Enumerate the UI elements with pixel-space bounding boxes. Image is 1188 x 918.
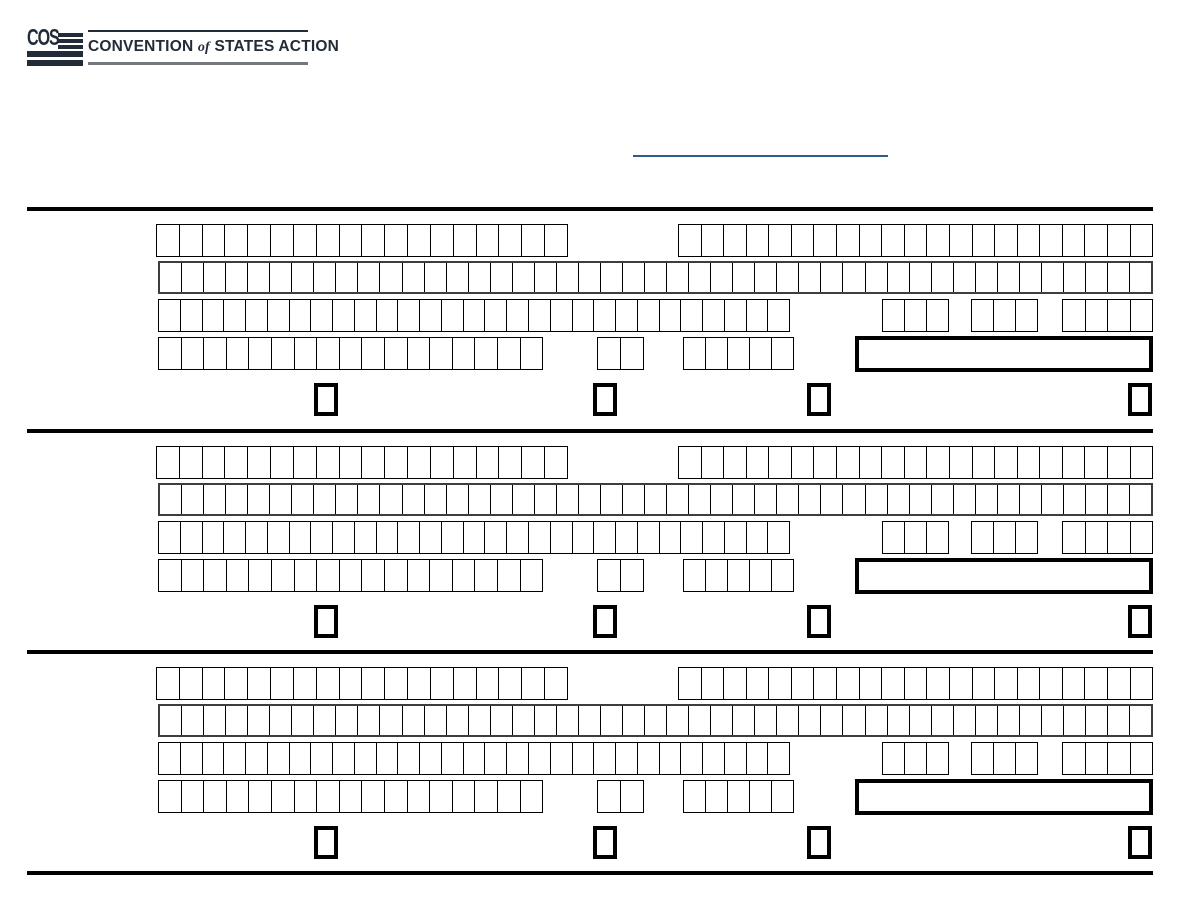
char-box[interactable] — [528, 743, 550, 774]
char-box[interactable] — [407, 560, 430, 591]
char-box[interactable] — [578, 706, 600, 735]
char-box[interactable] — [949, 225, 972, 256]
char-box[interactable] — [746, 300, 768, 331]
char-box[interactable] — [1107, 300, 1130, 331]
char-box[interactable] — [310, 522, 332, 553]
char-box[interactable] — [710, 485, 732, 514]
char-box[interactable] — [520, 781, 543, 812]
char-box[interactable] — [813, 668, 836, 699]
char-box[interactable] — [441, 743, 463, 774]
char-box[interactable] — [289, 743, 311, 774]
char-box[interactable] — [453, 225, 476, 256]
char-box[interactable] — [746, 668, 769, 699]
char-box[interactable] — [335, 263, 357, 292]
char-box[interactable] — [430, 668, 453, 699]
char-box[interactable] — [953, 485, 975, 514]
char-box[interactable] — [926, 447, 949, 478]
char-box[interactable] — [865, 263, 887, 292]
checkbox-2[interactable] — [593, 605, 617, 638]
char-box[interactable] — [723, 225, 746, 256]
checkbox-4[interactable] — [1128, 383, 1152, 416]
char-box[interactable] — [767, 300, 789, 331]
char-box[interactable] — [429, 781, 452, 812]
checkbox-4[interactable] — [1128, 605, 1152, 638]
char-box[interactable] — [637, 522, 659, 553]
char-box[interactable] — [679, 447, 701, 478]
char-box[interactable] — [883, 300, 904, 331]
char-box[interactable] — [994, 447, 1017, 478]
char-box[interactable] — [679, 225, 701, 256]
char-box[interactable] — [705, 560, 727, 591]
char-box[interactable] — [859, 668, 882, 699]
char-box[interactable] — [881, 668, 904, 699]
char-box[interactable] — [1062, 447, 1085, 478]
char-box[interactable] — [202, 447, 225, 478]
char-box[interactable] — [881, 447, 904, 478]
char-box[interactable] — [1063, 300, 1085, 331]
char-box[interactable] — [294, 781, 317, 812]
char-box[interactable] — [245, 522, 267, 553]
char-box[interactable] — [354, 743, 376, 774]
char-box[interactable] — [767, 522, 789, 553]
char-box[interactable] — [1107, 706, 1129, 735]
char-box[interactable] — [528, 522, 550, 553]
char-box[interactable] — [419, 743, 441, 774]
char-box[interactable] — [680, 743, 702, 774]
char-box[interactable] — [644, 706, 666, 735]
char-box[interactable] — [732, 706, 754, 735]
char-box[interactable] — [909, 485, 931, 514]
char-box[interactable] — [600, 706, 622, 735]
char-box[interactable] — [659, 522, 681, 553]
char-box[interactable] — [859, 225, 882, 256]
char-box[interactable] — [749, 560, 771, 591]
char-box[interactable] — [202, 300, 224, 331]
char-box[interactable] — [179, 447, 202, 478]
char-box[interactable] — [225, 706, 247, 735]
char-box[interactable] — [544, 225, 567, 256]
char-box[interactable] — [1015, 743, 1037, 774]
char-box[interactable] — [1041, 485, 1063, 514]
char-box[interactable] — [702, 522, 724, 553]
char-box[interactable] — [1129, 485, 1151, 514]
char-box[interactable] — [313, 706, 335, 735]
char-box[interactable] — [904, 668, 927, 699]
char-box[interactable] — [180, 300, 202, 331]
char-box[interactable] — [975, 263, 997, 292]
char-box[interactable] — [904, 522, 926, 553]
char-box[interactable] — [271, 560, 294, 591]
char-box[interactable] — [339, 781, 362, 812]
char-box[interactable] — [550, 522, 572, 553]
char-box[interactable] — [680, 300, 702, 331]
char-box[interactable] — [289, 300, 311, 331]
char-box[interactable] — [203, 338, 226, 369]
char-box[interactable] — [1085, 522, 1108, 553]
char-box[interactable] — [659, 743, 681, 774]
char-box[interactable] — [1130, 668, 1153, 699]
char-box[interactable] — [688, 706, 710, 735]
char-box[interactable] — [506, 522, 528, 553]
char-box[interactable] — [771, 560, 793, 591]
char-box[interactable] — [335, 485, 357, 514]
char-box[interactable] — [746, 522, 768, 553]
char-box[interactable] — [267, 743, 289, 774]
char-box[interactable] — [446, 485, 468, 514]
char-box[interactable] — [159, 522, 180, 553]
char-box[interactable] — [615, 743, 637, 774]
checkbox-3[interactable] — [807, 383, 831, 416]
char-box[interactable] — [732, 485, 754, 514]
char-box[interactable] — [727, 781, 749, 812]
char-box[interactable] — [463, 522, 485, 553]
char-box[interactable] — [1107, 225, 1130, 256]
char-box[interactable] — [247, 263, 269, 292]
char-box[interactable] — [202, 522, 224, 553]
char-box[interactable] — [271, 338, 294, 369]
char-box[interactable] — [754, 706, 776, 735]
char-box[interactable] — [994, 668, 1017, 699]
char-box[interactable] — [1041, 706, 1063, 735]
char-box[interactable] — [836, 447, 859, 478]
char-box[interactable] — [813, 225, 836, 256]
checkbox-1[interactable] — [314, 826, 338, 859]
char-box[interactable] — [506, 300, 528, 331]
char-box[interactable] — [376, 743, 398, 774]
char-box[interactable] — [476, 668, 499, 699]
char-box[interactable] — [316, 668, 339, 699]
char-box[interactable] — [836, 225, 859, 256]
char-box[interactable] — [953, 706, 975, 735]
char-box[interactable] — [476, 447, 499, 478]
char-box[interactable] — [593, 300, 615, 331]
char-box[interactable] — [247, 485, 269, 514]
char-box[interactable] — [159, 743, 180, 774]
char-box[interactable] — [361, 447, 384, 478]
char-box[interactable] — [1017, 447, 1040, 478]
char-box[interactable] — [931, 485, 953, 514]
char-box[interactable] — [620, 338, 643, 369]
char-box[interactable] — [293, 668, 316, 699]
char-box[interactable] — [271, 781, 294, 812]
char-box[interactable] — [883, 743, 904, 774]
char-box[interactable] — [181, 338, 204, 369]
char-box[interactable] — [247, 447, 270, 478]
char-box[interactable] — [269, 706, 291, 735]
char-box[interactable] — [202, 743, 224, 774]
char-box[interactable] — [1107, 263, 1129, 292]
char-box[interactable] — [484, 522, 506, 553]
char-box[interactable] — [1085, 263, 1107, 292]
char-box[interactable] — [1130, 225, 1153, 256]
char-box[interactable] — [881, 225, 904, 256]
char-box[interactable] — [361, 560, 384, 591]
char-box[interactable] — [572, 522, 594, 553]
char-box[interactable] — [598, 560, 620, 591]
char-box[interactable] — [291, 485, 313, 514]
char-box[interactable] — [512, 485, 534, 514]
char-box[interactable] — [749, 781, 771, 812]
char-box[interactable] — [620, 560, 643, 591]
char-box[interactable] — [883, 522, 904, 553]
char-box[interactable] — [181, 560, 204, 591]
char-box[interactable] — [666, 485, 688, 514]
char-box[interactable] — [887, 263, 909, 292]
char-box[interactable] — [544, 668, 567, 699]
char-box[interactable] — [791, 447, 814, 478]
char-box[interactable] — [1130, 522, 1153, 553]
char-box[interactable] — [248, 338, 271, 369]
char-box[interactable] — [225, 485, 247, 514]
char-box[interactable] — [666, 706, 688, 735]
char-box[interactable] — [723, 447, 746, 478]
char-box[interactable] — [926, 225, 949, 256]
char-box[interactable] — [248, 781, 271, 812]
char-box[interactable] — [684, 781, 705, 812]
char-box[interactable] — [397, 300, 419, 331]
char-box[interactable] — [1129, 263, 1151, 292]
char-box[interactable] — [746, 225, 769, 256]
char-box[interactable] — [727, 560, 749, 591]
char-box[interactable] — [224, 447, 247, 478]
char-box[interactable] — [332, 300, 354, 331]
char-box[interactable] — [887, 485, 909, 514]
char-box[interactable] — [972, 300, 993, 331]
char-box[interactable] — [407, 225, 430, 256]
char-box[interactable] — [972, 225, 995, 256]
char-box[interactable] — [600, 485, 622, 514]
char-box[interactable] — [484, 300, 506, 331]
char-box[interactable] — [468, 485, 490, 514]
char-box[interactable] — [798, 706, 820, 735]
char-box[interactable] — [1063, 743, 1085, 774]
signature-box[interactable] — [855, 336, 1153, 372]
char-box[interactable] — [887, 706, 909, 735]
char-box[interactable] — [419, 300, 441, 331]
char-box[interactable] — [767, 743, 789, 774]
char-box[interactable] — [1107, 743, 1130, 774]
char-box[interactable] — [316, 225, 339, 256]
char-box[interactable] — [397, 743, 419, 774]
char-box[interactable] — [245, 300, 267, 331]
char-box[interactable] — [506, 743, 528, 774]
char-box[interactable] — [1107, 485, 1129, 514]
char-box[interactable] — [754, 263, 776, 292]
char-box[interactable] — [270, 225, 293, 256]
char-box[interactable] — [556, 706, 578, 735]
char-box[interactable] — [181, 263, 203, 292]
char-box[interactable] — [294, 560, 317, 591]
char-box[interactable] — [376, 300, 398, 331]
char-box[interactable] — [1084, 447, 1107, 478]
char-box[interactable] — [1062, 225, 1085, 256]
char-box[interactable] — [384, 447, 407, 478]
char-box[interactable] — [1130, 300, 1153, 331]
char-box[interactable] — [476, 225, 499, 256]
char-box[interactable] — [593, 743, 615, 774]
char-box[interactable] — [181, 781, 204, 812]
char-box[interactable] — [972, 447, 995, 478]
char-box[interactable] — [521, 225, 544, 256]
checkbox-2[interactable] — [593, 383, 617, 416]
char-box[interactable] — [926, 743, 948, 774]
char-box[interactable] — [1041, 263, 1063, 292]
char-box[interactable] — [384, 668, 407, 699]
char-box[interactable] — [497, 338, 520, 369]
char-box[interactable] — [332, 743, 354, 774]
char-box[interactable] — [842, 485, 864, 514]
checkbox-3[interactable] — [807, 826, 831, 859]
char-box[interactable] — [771, 781, 793, 812]
char-box[interactable] — [904, 225, 927, 256]
char-box[interactable] — [452, 338, 475, 369]
char-box[interactable] — [310, 300, 332, 331]
char-box[interactable] — [424, 263, 446, 292]
char-box[interactable] — [335, 706, 357, 735]
char-box[interactable] — [622, 485, 644, 514]
char-box[interactable] — [534, 706, 556, 735]
char-box[interactable] — [429, 338, 452, 369]
char-box[interactable] — [1063, 485, 1085, 514]
char-box[interactable] — [474, 560, 497, 591]
char-box[interactable] — [181, 706, 203, 735]
char-box[interactable] — [578, 485, 600, 514]
char-box[interactable] — [776, 263, 798, 292]
char-box[interactable] — [453, 668, 476, 699]
char-box[interactable] — [270, 668, 293, 699]
char-box[interactable] — [556, 485, 578, 514]
char-box[interactable] — [354, 522, 376, 553]
checkbox-3[interactable] — [807, 605, 831, 638]
char-box[interactable] — [267, 522, 289, 553]
char-box[interactable] — [1039, 668, 1062, 699]
char-box[interactable] — [710, 263, 732, 292]
char-box[interactable] — [293, 225, 316, 256]
char-box[interactable] — [865, 485, 887, 514]
char-box[interactable] — [768, 447, 791, 478]
char-box[interactable] — [339, 338, 362, 369]
char-box[interactable] — [407, 447, 430, 478]
char-box[interactable] — [424, 485, 446, 514]
char-box[interactable] — [339, 668, 362, 699]
char-box[interactable] — [1039, 447, 1062, 478]
char-box[interactable] — [407, 338, 430, 369]
char-box[interactable] — [397, 522, 419, 553]
char-box[interactable] — [339, 447, 362, 478]
char-box[interactable] — [534, 263, 556, 292]
char-box[interactable] — [313, 485, 335, 514]
char-box[interactable] — [926, 300, 948, 331]
char-box[interactable] — [498, 225, 521, 256]
char-box[interactable] — [310, 743, 332, 774]
char-box[interactable] — [316, 560, 339, 591]
char-box[interactable] — [354, 300, 376, 331]
char-box[interactable] — [1019, 485, 1041, 514]
char-box[interactable] — [926, 522, 948, 553]
char-box[interactable] — [339, 560, 362, 591]
char-box[interactable] — [746, 743, 768, 774]
char-box[interactable] — [498, 668, 521, 699]
char-box[interactable] — [402, 485, 424, 514]
char-box[interactable] — [1063, 263, 1085, 292]
char-box[interactable] — [746, 447, 769, 478]
char-box[interactable] — [468, 263, 490, 292]
char-box[interactable] — [316, 781, 339, 812]
char-box[interactable] — [593, 522, 615, 553]
char-box[interactable] — [270, 447, 293, 478]
char-box[interactable] — [332, 522, 354, 553]
char-box[interactable] — [179, 668, 202, 699]
char-box[interactable] — [659, 300, 681, 331]
char-box[interactable] — [771, 338, 793, 369]
char-box[interactable] — [684, 338, 705, 369]
char-box[interactable] — [490, 706, 512, 735]
char-box[interactable] — [463, 300, 485, 331]
char-box[interactable] — [791, 668, 814, 699]
char-box[interactable] — [598, 781, 620, 812]
char-box[interactable] — [384, 338, 407, 369]
char-box[interactable] — [972, 743, 993, 774]
char-box[interactable] — [384, 225, 407, 256]
char-box[interactable] — [247, 706, 269, 735]
char-box[interactable] — [157, 447, 179, 478]
char-box[interactable] — [550, 743, 572, 774]
char-box[interactable] — [993, 522, 1015, 553]
char-box[interactable] — [1107, 668, 1130, 699]
char-box[interactable] — [376, 522, 398, 553]
char-box[interactable] — [224, 225, 247, 256]
char-box[interactable] — [688, 485, 710, 514]
char-box[interactable] — [749, 338, 771, 369]
signature-box[interactable] — [855, 558, 1153, 594]
char-box[interactable] — [180, 522, 202, 553]
char-box[interactable] — [724, 300, 746, 331]
char-box[interactable] — [997, 706, 1019, 735]
char-box[interactable] — [357, 263, 379, 292]
char-box[interactable] — [512, 263, 534, 292]
char-box[interactable] — [724, 522, 746, 553]
char-box[interactable] — [1085, 485, 1107, 514]
char-box[interactable] — [294, 338, 317, 369]
char-box[interactable] — [798, 485, 820, 514]
char-box[interactable] — [972, 522, 993, 553]
checkbox-1[interactable] — [314, 605, 338, 638]
char-box[interactable] — [972, 668, 995, 699]
char-box[interactable] — [931, 706, 953, 735]
char-box[interactable] — [550, 300, 572, 331]
char-box[interactable] — [247, 225, 270, 256]
char-box[interactable] — [615, 522, 637, 553]
char-box[interactable] — [727, 338, 749, 369]
char-box[interactable] — [1085, 300, 1108, 331]
char-box[interactable] — [1039, 225, 1062, 256]
char-box[interactable] — [361, 668, 384, 699]
char-box[interactable] — [1019, 263, 1041, 292]
char-box[interactable] — [949, 668, 972, 699]
char-box[interactable] — [644, 263, 666, 292]
char-box[interactable] — [820, 706, 842, 735]
char-box[interactable] — [813, 447, 836, 478]
char-box[interactable] — [572, 743, 594, 774]
char-box[interactable] — [637, 300, 659, 331]
char-box[interactable] — [644, 485, 666, 514]
char-box[interactable] — [159, 781, 181, 812]
char-box[interactable] — [637, 743, 659, 774]
char-box[interactable] — [430, 447, 453, 478]
char-box[interactable] — [497, 781, 520, 812]
char-box[interactable] — [768, 225, 791, 256]
char-box[interactable] — [490, 263, 512, 292]
